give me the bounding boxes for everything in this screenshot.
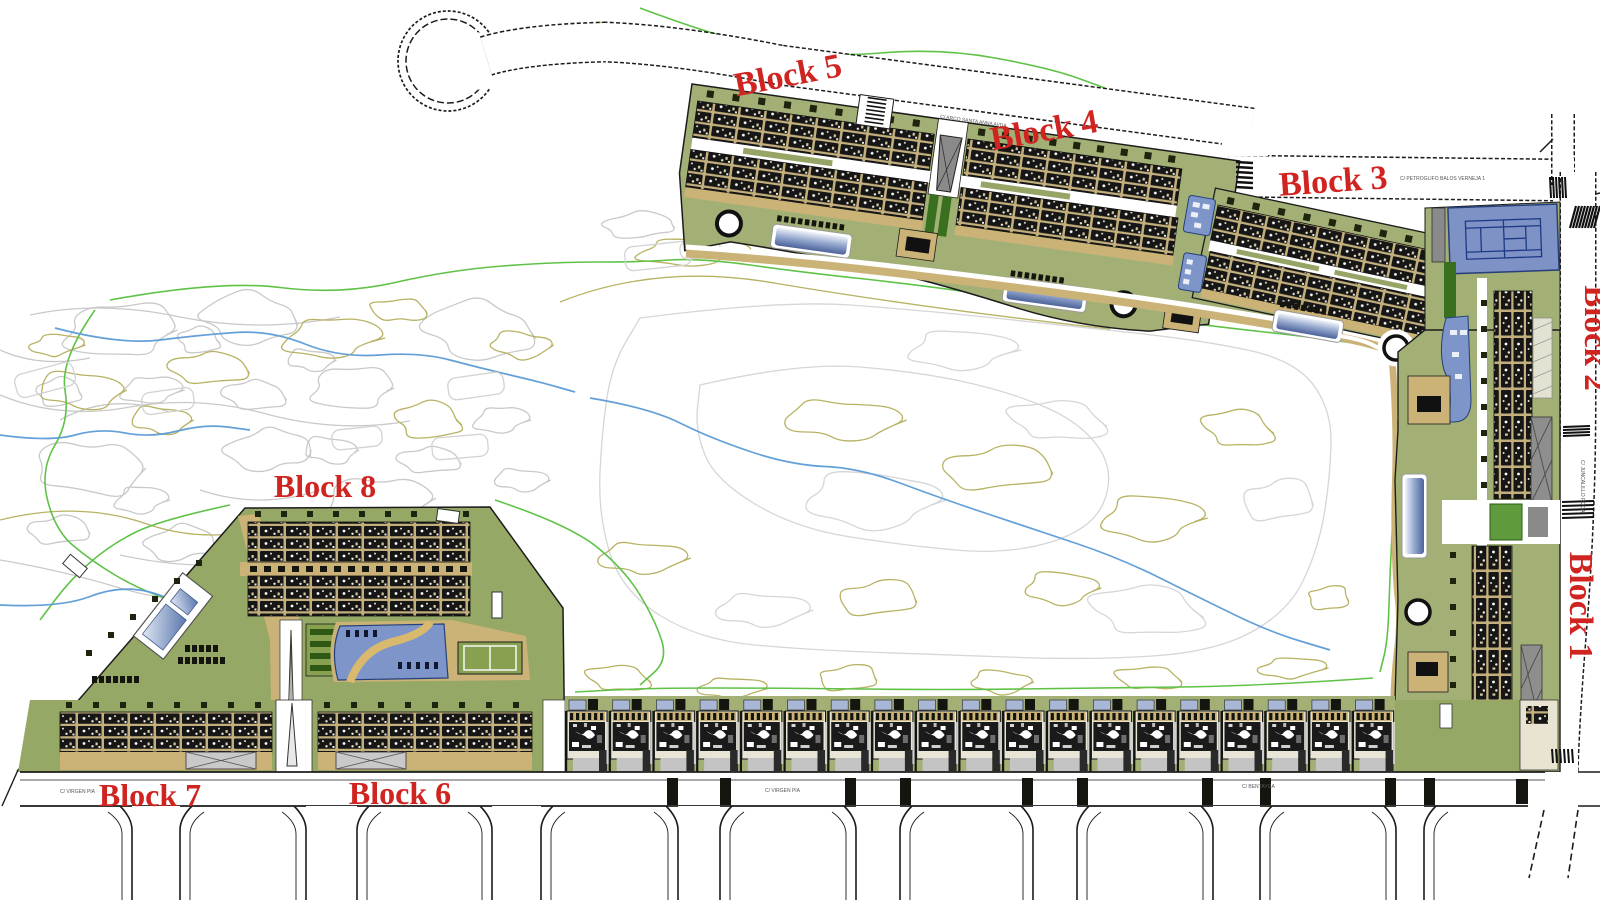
svg-text:Block 1: Block 1 xyxy=(1562,552,1599,661)
svg-text:Block 8: Block 8 xyxy=(274,468,376,504)
svg-text:C/ JUNCALILLO ROCA: C/ JUNCALILLO ROCA xyxy=(1579,460,1585,513)
svg-text:C/ VIRGEN PIA: C/ VIRGEN PIA xyxy=(765,788,801,794)
svg-text:Block 7: Block 7 xyxy=(99,777,201,813)
svg-text:C/ VIRGEN PIA: C/ VIRGEN PIA xyxy=(60,789,96,795)
svg-text:Block 3: Block 3 xyxy=(1278,159,1389,203)
svg-text:C/ PETROGLIFO BALOS VERNEJA 1: C/ PETROGLIFO BALOS VERNEJA 1 xyxy=(1400,176,1485,182)
svg-text:Block 2: Block 2 xyxy=(1577,285,1600,390)
svg-text:C/ BENTAYGA: C/ BENTAYGA xyxy=(1242,784,1276,790)
svg-text:Block 6: Block 6 xyxy=(349,775,451,811)
